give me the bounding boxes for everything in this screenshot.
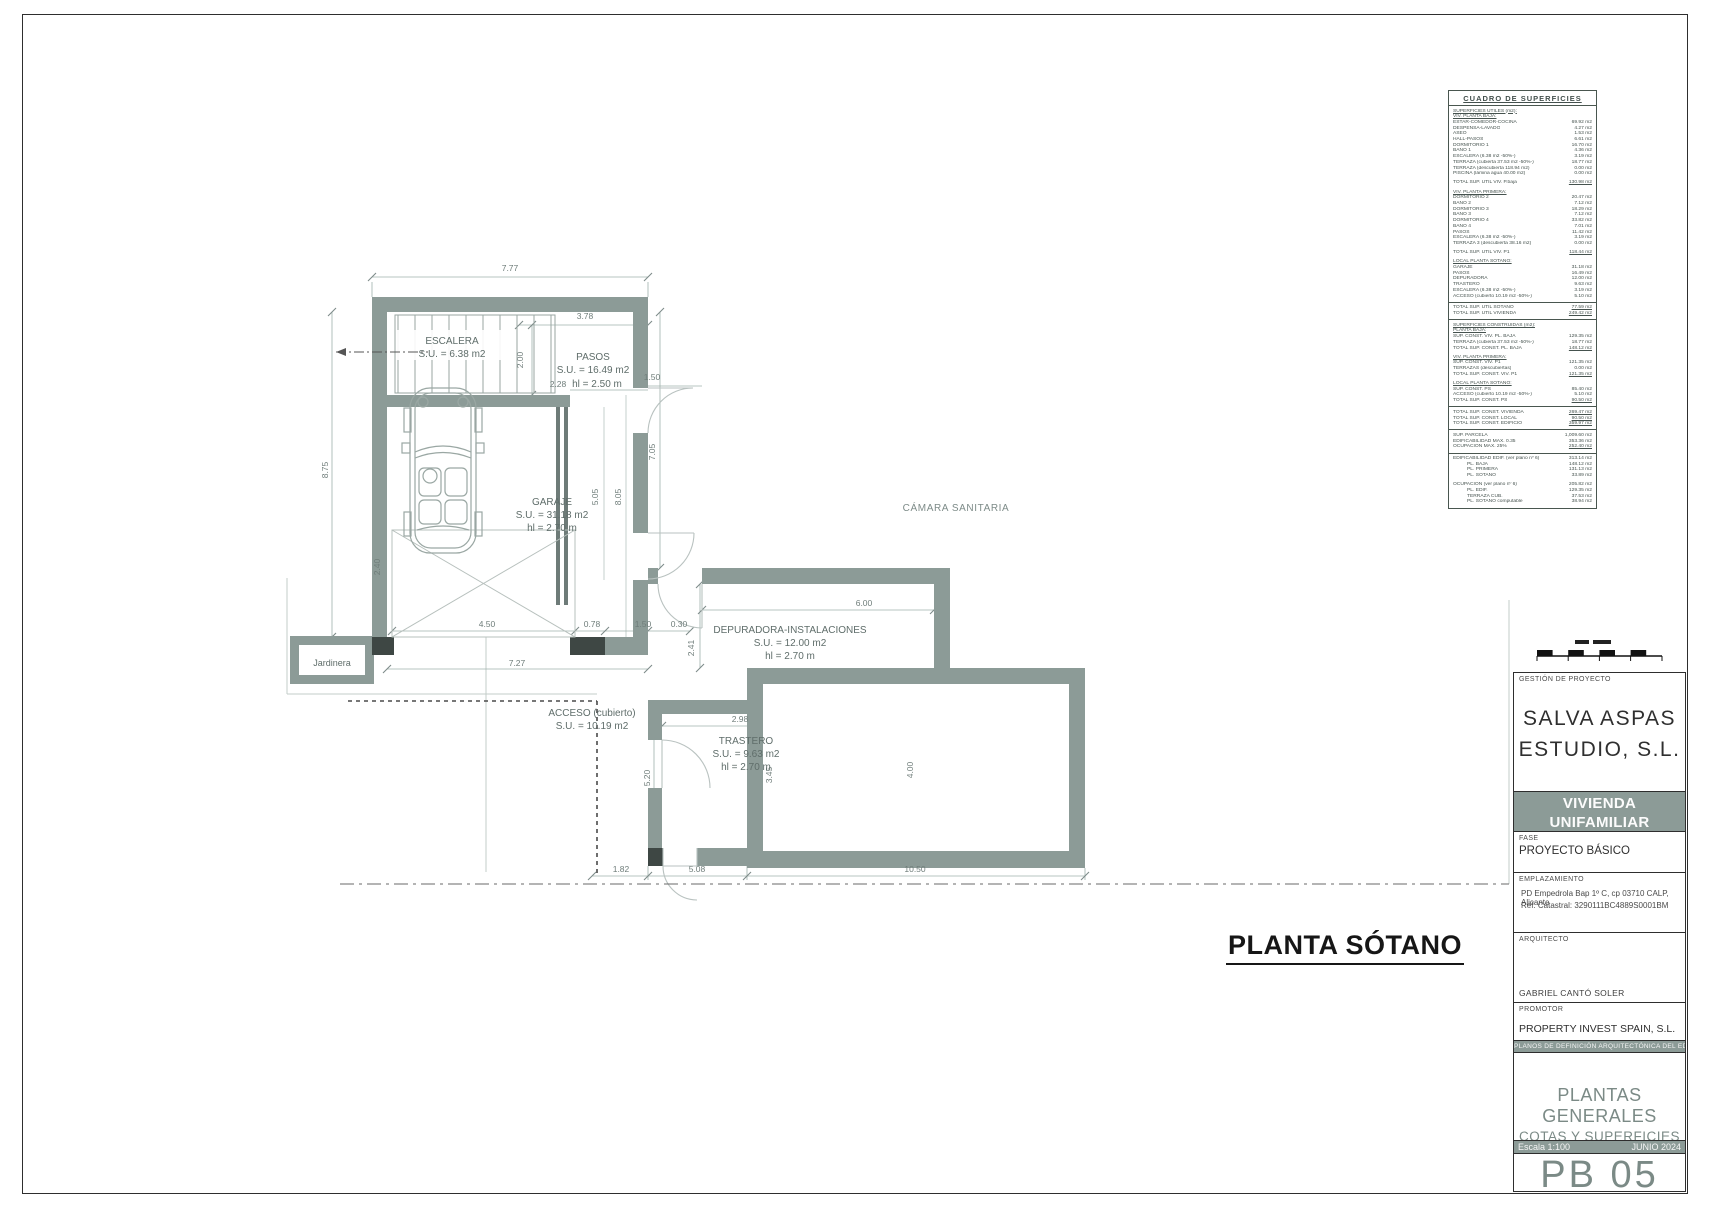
promotor-value: PROPERTY INVEST SPAIN, S.L. <box>1519 1023 1675 1035</box>
room-label: S.U. = 10.19 m2 <box>556 721 629 732</box>
dimension-label: 4.00 <box>905 761 915 778</box>
dimension-label: 1.50 <box>644 372 661 382</box>
table-row: OCUPACIÓN MAX. 25%252.40 m2 <box>1453 444 1592 450</box>
titleblock-series-band: PLANOS DE DEFINICIÓN ARQUITECTÓNICA DEL … <box>1514 1040 1685 1052</box>
room-label: S.U. = 12.00 m2 <box>754 638 827 649</box>
dimension-label: 3.78 <box>577 311 594 321</box>
titleblock-scale-band: Escala 1:100 JUNIO 2024 <box>1514 1140 1685 1153</box>
dimension-label: 7.27 <box>509 658 526 668</box>
titleblock-architect-section: ARQUITECTO GABRIEL CANTÓ SOLER <box>1514 932 1685 1002</box>
scale-label: Escala 1:100 <box>1518 1142 1570 1152</box>
dimension-label: 2.41 <box>686 639 696 656</box>
room-label: S.U. = 16.49 m2 <box>557 365 630 376</box>
plan-title: PLANTA SÓTANO <box>1180 930 1510 965</box>
room-label: hl = 2.50 m <box>572 379 622 390</box>
dimension-label: 5.08 <box>689 864 706 874</box>
room-label: S.U. = 31.18 m2 <box>516 510 589 521</box>
fase-value: PROYECTO BÁSICO <box>1519 845 1630 857</box>
dimension-label: 7.77 <box>502 263 519 273</box>
table-divider <box>1449 406 1596 407</box>
table-row: TOTAL SUP. CONST. EDIFICIO359.97 m2 <box>1453 421 1592 427</box>
table-row: TERRAZA 3 (descubierta 38.16 m2)0.00 m2 <box>1453 241 1592 247</box>
room-label: hl = 2.70 m <box>765 651 815 662</box>
table-row: ACCESO (cubierto 10.19 m2 -50%-)5.10 m2 <box>1453 294 1592 300</box>
dimension-label: 5.20 <box>642 769 652 786</box>
surfaces-table-rows: SUPERFICIES ÚTILES (m2):VIV. PLANTA BAJA… <box>1449 106 1596 509</box>
studio-name-line1: SALVA ASPAS <box>1514 703 1685 734</box>
studio-name-line2: ESTUDIO, S.L. <box>1514 734 1685 765</box>
titleblock-code-section: PB 05 <box>1514 1153 1685 1197</box>
titleblock-promoter-section: PROMOTOR PROPERTY INVEST SPAIN, S.L. <box>1514 1002 1685 1040</box>
room-label: hl = 2.70 m <box>527 523 577 534</box>
room-label: S.U. = 6.38 m2 <box>419 349 486 360</box>
dimension-label: 1.50 <box>635 619 652 629</box>
drawing-sheet: 7.773.782.001.502.288.757.058.055.052.40… <box>0 0 1710 1208</box>
date-label: JUNIO 2024 <box>1631 1142 1681 1152</box>
dimension-label: 8.05 <box>613 488 623 505</box>
address-line2: Ref. Catastral: 3290111BC4889S0001BM <box>1521 901 1668 910</box>
series-band-text: PLANOS DE DEFINICIÓN ARQUITECTÓNICA DEL … <box>1514 1041 1685 1052</box>
title-block: GESTIÓN DE PROYECTO SALVA ASPAS ESTUDIO,… <box>1513 672 1686 1192</box>
table-divider <box>1449 319 1596 320</box>
emplazamiento-label: EMPLAZAMIENTO <box>1519 876 1584 883</box>
room-label: hl = 2.70 m <box>721 762 771 773</box>
room-label: PASOS <box>576 352 610 363</box>
promotor-label: PROMOTOR <box>1519 1006 1563 1013</box>
dimension-label: 10.50 <box>904 864 926 874</box>
sheet-name-line2: COTAS Y SUPERFICIES <box>1514 1129 1685 1140</box>
titleblock-project-band: VIVIENDA UNIFAMILIAR AISLADA CON PISCINA <box>1514 791 1685 831</box>
room-label: CÁMARA SANITARIA <box>903 501 1010 514</box>
drawing-code: PB 05 <box>1514 1154 1685 1196</box>
dimension-label: 0.30 <box>671 619 688 629</box>
dimension-label: 2.40 <box>372 558 382 575</box>
table-divider <box>1449 453 1596 454</box>
table-row: PISCINA (lámina agua 40.00 m2)0.00 m2 <box>1453 171 1592 177</box>
dimension-label: 0.78 <box>584 619 601 629</box>
dimension-label: 8.75 <box>320 461 330 478</box>
plan-title-text: PLANTA SÓTANO <box>1226 930 1464 965</box>
arquitecto-label: ARQUITECTO <box>1519 936 1569 943</box>
room-label: ACCESO (cubierto) <box>548 708 635 719</box>
project-title-line1: VIVIENDA UNIFAMILIAR <box>1514 794 1685 831</box>
table-row: TOTAL SUP. ÚTIL VIVIENDA249.42 m2 <box>1453 311 1592 317</box>
section-cut-walls <box>372 637 663 866</box>
room-label: DEPURADORA-INSTALACIONES <box>713 625 867 636</box>
dimension-label: 2.28 <box>550 379 567 389</box>
dimension-label: 6.00 <box>856 598 873 608</box>
table-row: TOTAL SUP. CONST. PS90.50 m2 <box>1453 398 1592 404</box>
arquitecto-value: GABRIEL CANTÓ SOLER <box>1519 988 1625 998</box>
graphic-scale-bar <box>1535 638 1665 664</box>
dimension-label: 2.00 <box>515 351 525 368</box>
room-label: Jardinera <box>313 658 351 668</box>
table-divider <box>1449 429 1596 430</box>
table-divider <box>1449 302 1596 303</box>
dimension-label: 5.05 <box>590 488 600 505</box>
dimension-label: 1.82 <box>613 864 630 874</box>
sheet-name-line1: PLANTAS GENERALES <box>1514 1085 1685 1127</box>
room-label: TRASTERO <box>719 736 774 747</box>
dimension-label: 7.05 <box>647 443 657 460</box>
room-label: S.U. = 9.63 m2 <box>713 749 780 760</box>
dimension-label: 2.98 <box>732 714 749 724</box>
titleblock-sheetname-section: PLANTAS GENERALES COTAS Y SUPERFICIES <box>1514 1052 1685 1140</box>
surfaces-table-title: CUADRO DE SUPERFICIES <box>1449 91 1596 106</box>
project-management-label: GESTIÓN DE PROYECTO <box>1519 676 1611 683</box>
titleblock-studio-section: GESTIÓN DE PROYECTO SALVA ASPAS ESTUDIO,… <box>1514 673 1685 791</box>
car-icon <box>402 388 484 553</box>
table-row: PL. SÓTANO computable38.94 m2 <box>1453 499 1592 505</box>
room-label: ESCALERA <box>425 336 479 347</box>
dimension-label: 4.50 <box>479 619 496 629</box>
titleblock-location-section: EMPLAZAMIENTO PD Empedrola Bap 1º C, cp … <box>1514 872 1685 932</box>
titleblock-fase-section: FASE PROYECTO BÁSICO <box>1514 831 1685 872</box>
surfaces-table: CUADRO DE SUPERFICIES SUPERFICIES ÚTILES… <box>1448 90 1597 509</box>
room-label: GARAJE <box>532 497 572 508</box>
fase-label: FASE <box>1519 835 1539 842</box>
